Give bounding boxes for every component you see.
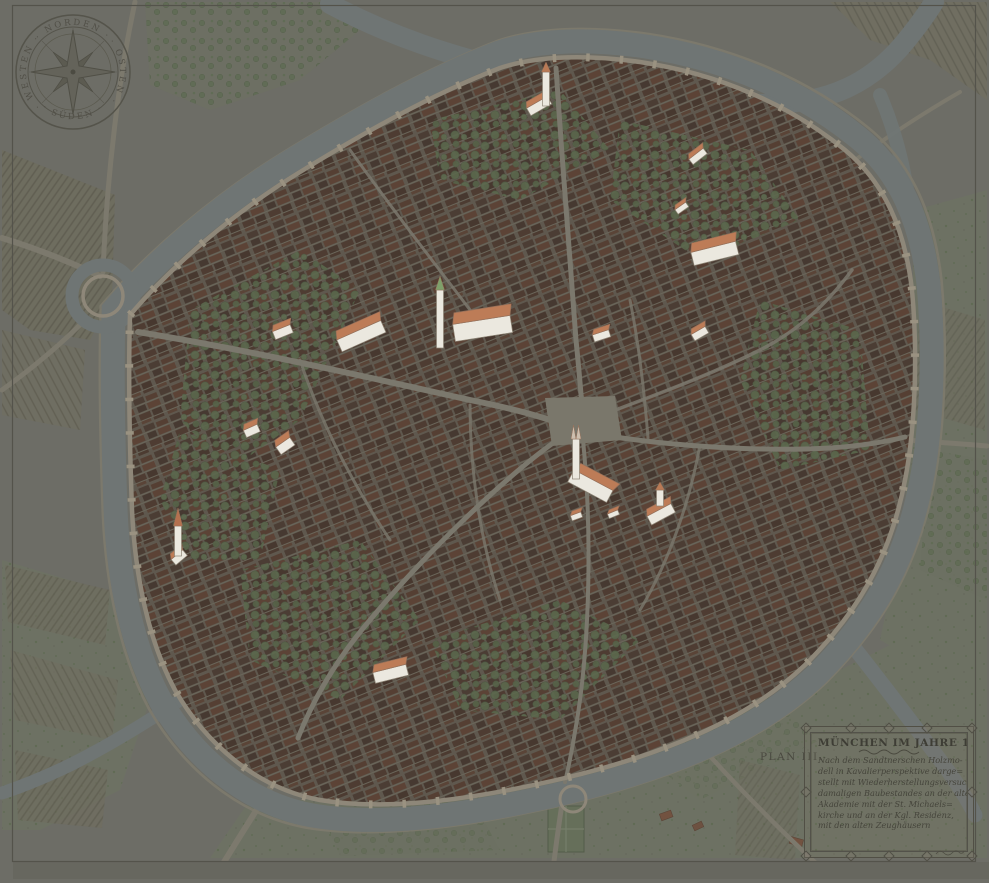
compass-rose: · NORDEN · · OSTEN · · WESTEN · · SÜDEN … (16, 15, 130, 129)
cartouche-line: kirche und an der Kgl. Residenz, (818, 810, 961, 821)
cartouche-line: Nach dem Sandtnerschen Holzmo- (818, 755, 961, 766)
cartouche: MÜNCHEN IM JAHRE 1570· Nach dem Sandtner… (804, 726, 974, 858)
cartouche-line: stellt mit Wiederherstellungsversuch des (818, 777, 961, 788)
cartouche-line: damaligen Baubestandes an der alten (818, 788, 961, 799)
cartouche-line: mit den alten Zeughäusern (818, 820, 961, 831)
cartouche-title: MÜNCHEN IM JAHRE 1570· (818, 737, 961, 749)
cartouche-panel: MÜNCHEN IM JAHRE 1570· Nach dem Sandtner… (810, 732, 968, 852)
cartouche-line: dell in Kavalierperspektive darge= (818, 766, 961, 777)
market-square (545, 396, 622, 446)
signature-flourish (935, 849, 965, 857)
sheet-margin (13, 862, 989, 879)
cartouche-line: Akademie mit der St. Michaels= (818, 799, 961, 810)
